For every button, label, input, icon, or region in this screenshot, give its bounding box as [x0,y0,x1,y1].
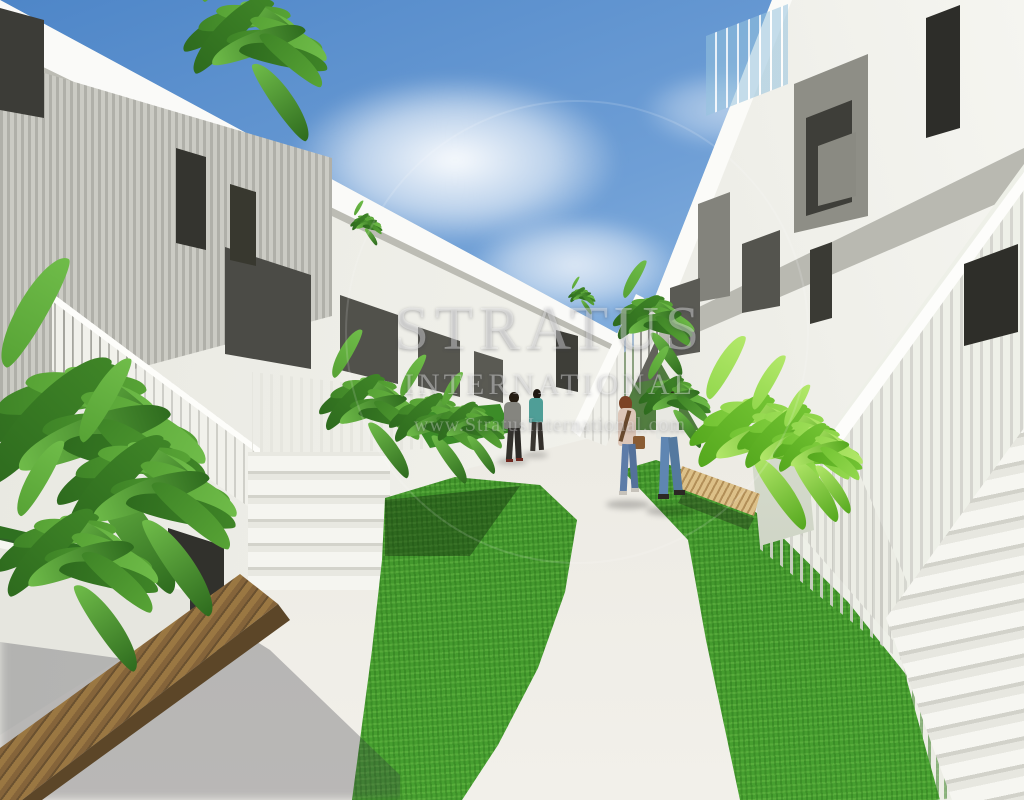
leaf [207,16,308,71]
leaf [256,25,330,91]
person-torso [529,398,543,423]
person-shoe [506,459,513,462]
person-leg [530,422,537,451]
person-shoe [674,490,685,495]
person-walking [500,392,528,464]
person-walking [525,389,549,455]
person-leg [620,444,630,492]
person-leg [506,428,514,460]
leaf [197,1,292,35]
person-leg [628,444,638,490]
person-shoe [619,491,627,495]
render-scene: STRATUS INTERNATIONAL www.StratusInterna… [0,0,1024,800]
woman-walking [610,396,650,508]
leaf [177,0,278,57]
person-shoe [516,458,523,461]
leaf [215,0,300,37]
person-shoe [631,488,639,492]
person-leg [537,422,544,450]
leaf [183,0,274,79]
man-walking [648,384,692,512]
leaf [237,36,329,75]
leaf [226,26,323,55]
person-torso [656,395,679,439]
person-torso [504,402,521,429]
leaf [237,0,312,58]
leaf [248,8,333,65]
person-shoe [658,494,669,499]
person-leg [668,437,683,494]
leaf [194,0,248,4]
person-leg [514,428,522,459]
